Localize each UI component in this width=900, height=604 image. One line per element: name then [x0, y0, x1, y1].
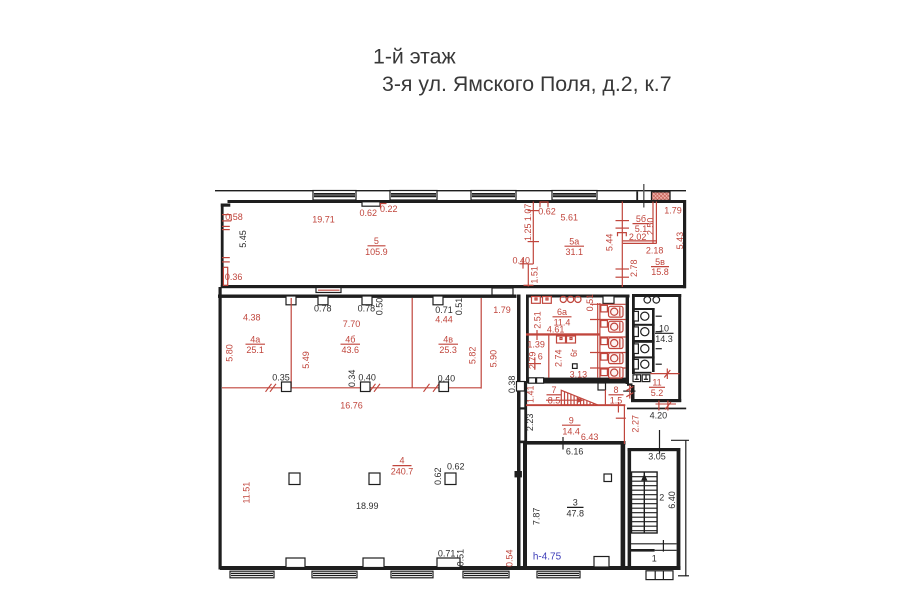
- svg-text:8.5: 8.5: [548, 396, 561, 406]
- svg-text:1.5: 1.5: [610, 396, 623, 406]
- svg-text:4.20: 4.20: [650, 410, 668, 420]
- svg-text:25.1: 25.1: [246, 345, 264, 355]
- svg-text:8: 8: [613, 385, 618, 395]
- svg-text:0.22: 0.22: [380, 204, 398, 214]
- svg-text:5.90: 5.90: [489, 350, 499, 368]
- svg-text:5.82: 5.82: [467, 347, 477, 365]
- svg-text:7.87: 7.87: [532, 508, 542, 526]
- svg-text:5в: 5в: [655, 257, 665, 267]
- svg-text:0.40: 0.40: [358, 373, 376, 383]
- svg-text:6: 6: [538, 351, 543, 361]
- svg-text:2: 2: [659, 493, 664, 503]
- svg-text:2.50: 2.50: [645, 218, 655, 236]
- svg-text:1-й этаж: 1-й этаж: [373, 45, 457, 69]
- svg-text:6.16: 6.16: [566, 446, 584, 456]
- svg-text:4б: 4б: [345, 334, 355, 344]
- svg-text:0.35: 0.35: [272, 373, 290, 383]
- svg-text:0.62: 0.62: [433, 467, 443, 485]
- svg-text:0.62: 0.62: [538, 206, 556, 216]
- svg-text:3-я ул. Ямского Поля, д.2, к.7: 3-я ул. Ямского Поля, д.2, к.7: [382, 72, 672, 96]
- svg-text:5.44: 5.44: [604, 234, 614, 252]
- svg-text:0.51: 0.51: [454, 298, 464, 316]
- svg-text:0.36: 0.36: [225, 272, 243, 282]
- svg-text:0.54: 0.54: [505, 549, 515, 567]
- svg-text:11.51: 11.51: [241, 482, 251, 504]
- svg-text:31.1: 31.1: [566, 247, 584, 257]
- svg-text:0.50: 0.50: [375, 298, 385, 316]
- svg-text:0.71: 0.71: [438, 548, 456, 558]
- svg-text:0.78: 0.78: [314, 303, 332, 313]
- svg-text:6а: 6а: [557, 307, 567, 317]
- svg-text:47.8: 47.8: [567, 509, 585, 519]
- svg-text:19.71: 19.71: [312, 215, 335, 225]
- svg-text:2.74: 2.74: [554, 349, 564, 367]
- svg-text:43.6: 43.6: [342, 345, 360, 355]
- svg-text:2.02: 2.02: [629, 232, 647, 242]
- svg-text:6.43: 6.43: [581, 432, 599, 442]
- svg-text:2.79: 2.79: [528, 352, 538, 370]
- svg-text:4: 4: [399, 456, 404, 466]
- svg-text:4в: 4в: [443, 334, 453, 344]
- svg-text:3: 3: [573, 498, 578, 508]
- svg-text:2.23: 2.23: [525, 414, 535, 432]
- svg-text:4.61: 4.61: [547, 324, 565, 334]
- svg-text:4.44: 4.44: [435, 315, 453, 325]
- svg-text:2.18: 2.18: [646, 246, 664, 256]
- svg-text:0.38: 0.38: [507, 376, 517, 394]
- svg-text:5.61: 5.61: [561, 212, 579, 222]
- svg-text:5.2: 5.2: [651, 388, 664, 398]
- svg-text:0.62: 0.62: [447, 462, 465, 472]
- svg-text:1: 1: [652, 554, 657, 564]
- svg-text:0.40: 0.40: [438, 373, 456, 383]
- svg-text:0.51: 0.51: [456, 549, 466, 567]
- svg-text:14.3: 14.3: [655, 334, 673, 344]
- svg-text:0.34: 0.34: [347, 370, 357, 388]
- svg-text:5.45: 5.45: [238, 230, 248, 248]
- svg-text:3.05: 3.05: [648, 452, 666, 462]
- svg-text:5а: 5а: [569, 236, 579, 246]
- svg-text:2.27: 2.27: [631, 415, 641, 433]
- svg-text:25.3: 25.3: [439, 345, 457, 355]
- svg-text:16.76: 16.76: [340, 401, 363, 411]
- svg-text:11: 11: [652, 378, 661, 388]
- svg-text:0.62: 0.62: [360, 208, 378, 218]
- svg-text:0.78: 0.78: [358, 303, 376, 313]
- svg-text:1.79: 1.79: [493, 305, 511, 315]
- svg-text:1.51: 1.51: [529, 266, 539, 284]
- svg-text:1.79: 1.79: [664, 206, 682, 216]
- svg-text:0.51: 0.51: [585, 294, 595, 312]
- svg-text:1.07: 1.07: [523, 204, 533, 222]
- svg-text:5: 5: [374, 236, 379, 246]
- svg-text:15.8: 15.8: [651, 267, 669, 277]
- svg-text:6г: 6г: [569, 348, 579, 357]
- svg-text:1.25: 1.25: [523, 223, 533, 241]
- svg-text:0.40: 0.40: [513, 255, 531, 265]
- svg-text:5.80: 5.80: [224, 344, 234, 362]
- svg-text:7.70: 7.70: [343, 319, 361, 329]
- svg-text:5.49: 5.49: [301, 351, 311, 369]
- svg-text:0.71: 0.71: [435, 305, 453, 315]
- svg-text:240.7: 240.7: [391, 467, 414, 477]
- svg-text:7: 7: [551, 385, 556, 395]
- svg-text:2.78: 2.78: [629, 259, 639, 277]
- svg-text:18.99: 18.99: [356, 501, 379, 511]
- svg-text:0.58: 0.58: [225, 212, 243, 222]
- svg-text:1.39: 1.39: [527, 339, 545, 349]
- svg-text:9: 9: [569, 415, 574, 425]
- svg-text:14.4: 14.4: [562, 426, 580, 436]
- svg-text:h-4.75: h-4.75: [533, 552, 562, 563]
- svg-text:6.40: 6.40: [667, 491, 677, 509]
- svg-text:4а: 4а: [250, 334, 260, 344]
- svg-text:5.43: 5.43: [675, 232, 685, 250]
- svg-text:4.38: 4.38: [243, 312, 261, 322]
- svg-text:105.9: 105.9: [365, 247, 388, 257]
- svg-text:1.41: 1.41: [526, 385, 536, 403]
- svg-text:10: 10: [659, 324, 669, 334]
- svg-text:2.51: 2.51: [533, 311, 543, 329]
- svg-text:3.13: 3.13: [570, 370, 588, 380]
